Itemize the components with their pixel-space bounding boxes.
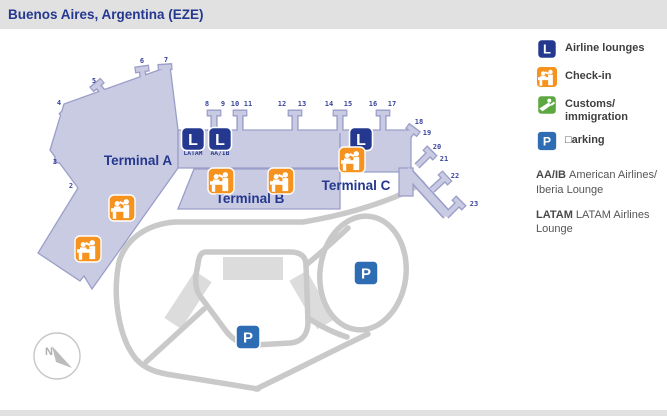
gate-label-15: 15 (344, 100, 352, 108)
lounge-notes: AA/IB American Airlines/ Iberia Lounge L… (536, 168, 662, 236)
lounge-note-latam: LATAM LATAM Airlines Lounge (536, 208, 662, 237)
customs-immigration-icon (536, 94, 558, 116)
gate-label-19: 19 (423, 129, 431, 137)
check-in-icon (536, 66, 558, 88)
gate-pier (58, 156, 72, 158)
airline-lounge-icon (182, 128, 205, 151)
check-in-icon (268, 168, 294, 194)
gate-pier (136, 68, 148, 70)
legend-item-customs: Customs/ immigration (536, 94, 662, 124)
legend-label: Airline lounges (565, 38, 644, 55)
legend-item-checkin: Check-in (536, 66, 662, 88)
gate-pier (142, 69, 144, 83)
check-in-icon (109, 195, 135, 221)
gate-label-14: 14 (325, 100, 333, 108)
airline-lounge-icon (536, 38, 558, 60)
check-in-icon (75, 236, 101, 262)
gate-pier (159, 67, 171, 68)
title-bar: Buenos Aires, Argentina (EZE) (0, 0, 667, 29)
gate-label-4: 4 (57, 99, 61, 107)
footer-bar (0, 410, 667, 416)
gate-label-8: 8 (205, 100, 209, 108)
compass-north-label: N (45, 346, 53, 358)
gate-label-23: 23 (470, 200, 478, 208)
gate-label-21: 21 (440, 155, 448, 163)
gate-label-22: 22 (451, 172, 459, 180)
gate-label-11: 11 (244, 100, 252, 108)
gate-label-7: 7 (164, 56, 168, 64)
page-title: Buenos Aires, Argentina (EZE) (0, 0, 667, 29)
gate-label-16: 16 (369, 100, 377, 108)
gate-label-5: 5 (92, 77, 96, 85)
legend-label: Customs/ immigration (565, 94, 628, 124)
legend-label: Check-in (565, 66, 611, 83)
gate-label-6: 6 (140, 57, 144, 65)
compass: N (34, 333, 80, 379)
lounge-note-aa-ib: AA/IB American Airlines/ Iberia Lounge (536, 168, 662, 197)
legend-item-lounges: Airline lounges (536, 38, 662, 60)
gate-label-3: 3 (53, 158, 57, 166)
parking-icon (354, 261, 378, 285)
parking-icon (536, 130, 558, 152)
roads (116, 183, 422, 389)
legend: Airline lounges Check-in Customs/ immigr… (536, 38, 662, 248)
parking-lot (223, 257, 283, 280)
gate-label-17: 17 (388, 100, 396, 108)
gate-label-2: 2 (69, 182, 73, 190)
parking-icon (236, 325, 260, 349)
gate-label-12: 12 (278, 100, 286, 108)
terminal-c-label: Terminal C (322, 178, 391, 193)
check-in-icon (208, 168, 234, 194)
gate-label-20: 20 (433, 143, 441, 151)
legend-item-parking: □arking (536, 130, 662, 152)
gate-label-10: 10 (231, 100, 239, 108)
check-in-icon (339, 147, 365, 173)
gate-label-13: 13 (298, 100, 306, 108)
terminal-a-label: Terminal A (104, 153, 173, 168)
airline-lounge-icon (209, 128, 232, 151)
gate-label-18: 18 (415, 118, 423, 126)
gate-pier (57, 150, 59, 162)
legend-label: □arking (565, 130, 605, 147)
gate-label-9: 9 (221, 100, 225, 108)
gate-pier (165, 67, 166, 81)
